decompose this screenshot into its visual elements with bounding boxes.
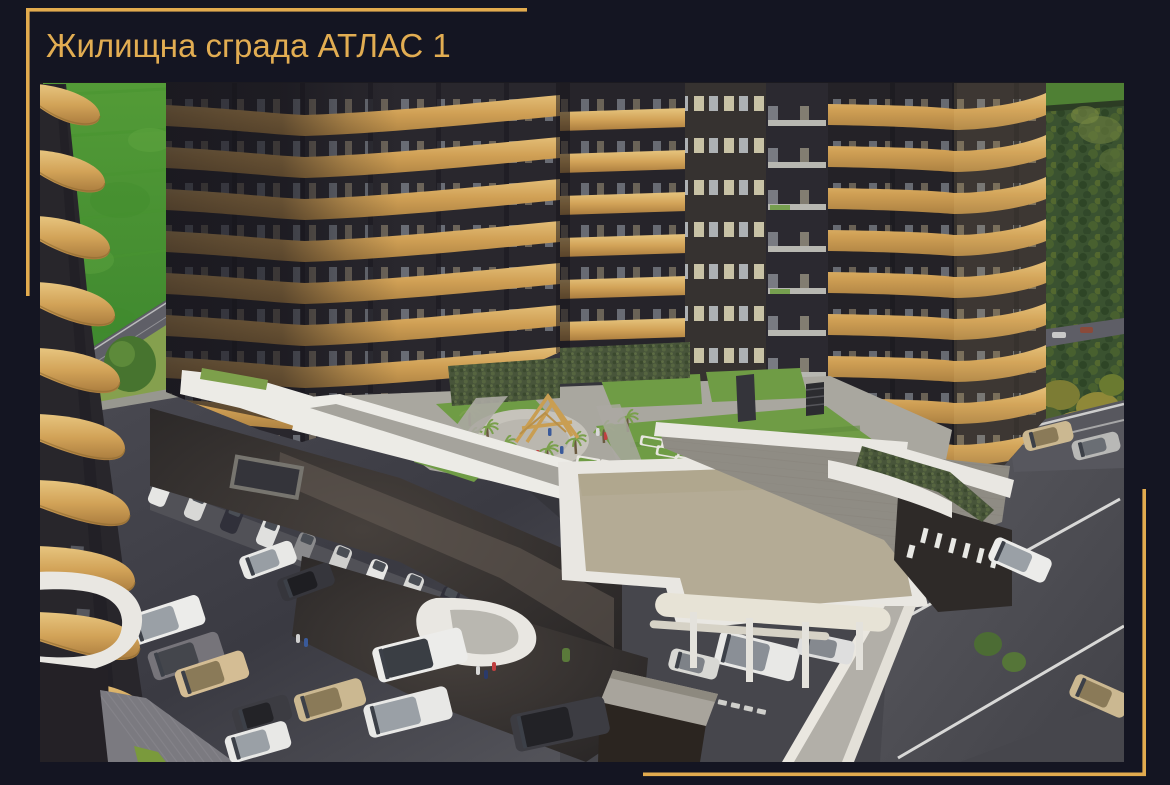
- svg-text:Жилищна сграда АТЛАС 1: Жилищна сграда АТЛАС 1: [46, 27, 451, 64]
